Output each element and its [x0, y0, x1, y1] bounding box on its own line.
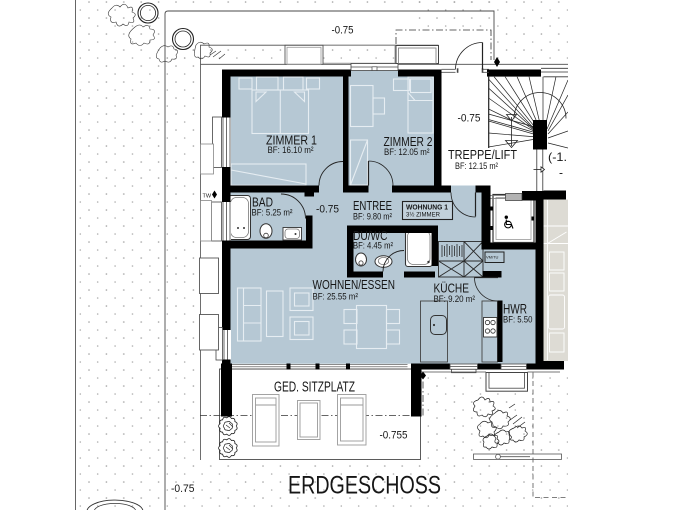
svg-text:BF: 9.20 m²: BF: 9.20 m²	[434, 294, 476, 305]
svg-text:BF: 25.55 m²: BF: 25.55 m²	[313, 292, 359, 303]
svg-text:TW: TW	[203, 194, 212, 200]
svg-text:BF: 12.05 m²: BF: 12.05 m²	[384, 147, 430, 158]
svg-text:-0.75: -0.75	[316, 204, 339, 216]
svg-text:-0.75: -0.75	[171, 483, 195, 495]
svg-text:BF: 5.25 m²: BF: 5.25 m²	[252, 208, 293, 219]
svg-text:-0.75: -0.75	[332, 25, 354, 37]
svg-text:WOHNEN/ESSEN: WOHNEN/ESSEN	[313, 277, 396, 292]
svg-text:ERDGESCHOSS: ERDGESCHOSS	[288, 472, 441, 500]
svg-text:BF: 12.15 m²: BF: 12.15 m²	[455, 161, 498, 172]
svg-text:(-1.: (-1.	[548, 150, 567, 164]
svg-text:BF: 4.45 m²: BF: 4.45 m²	[353, 241, 393, 252]
svg-text:BF: 16.10 m²: BF: 16.10 m²	[268, 145, 314, 156]
svg-text:VM/TU: VM/TU	[486, 255, 499, 260]
svg-text:WOHNUNG 1: WOHNUNG 1	[406, 202, 448, 211]
svg-text:-0.75: -0.75	[458, 113, 481, 125]
svg-text:-0.755: -0.755	[380, 430, 408, 442]
svg-text:3½ ZIMMER: 3½ ZIMMER	[406, 211, 440, 219]
svg-text:BF: 9.80 m²: BF: 9.80 m²	[353, 211, 392, 222]
svg-text:BF: 5.50: BF: 5.50	[503, 315, 533, 326]
svg-text:GED. SITZPLATZ: GED. SITZPLATZ	[274, 379, 355, 395]
svg-text:TREPPE/LIFT: TREPPE/LIFT	[448, 147, 517, 162]
svg-text:-: -	[559, 166, 563, 180]
